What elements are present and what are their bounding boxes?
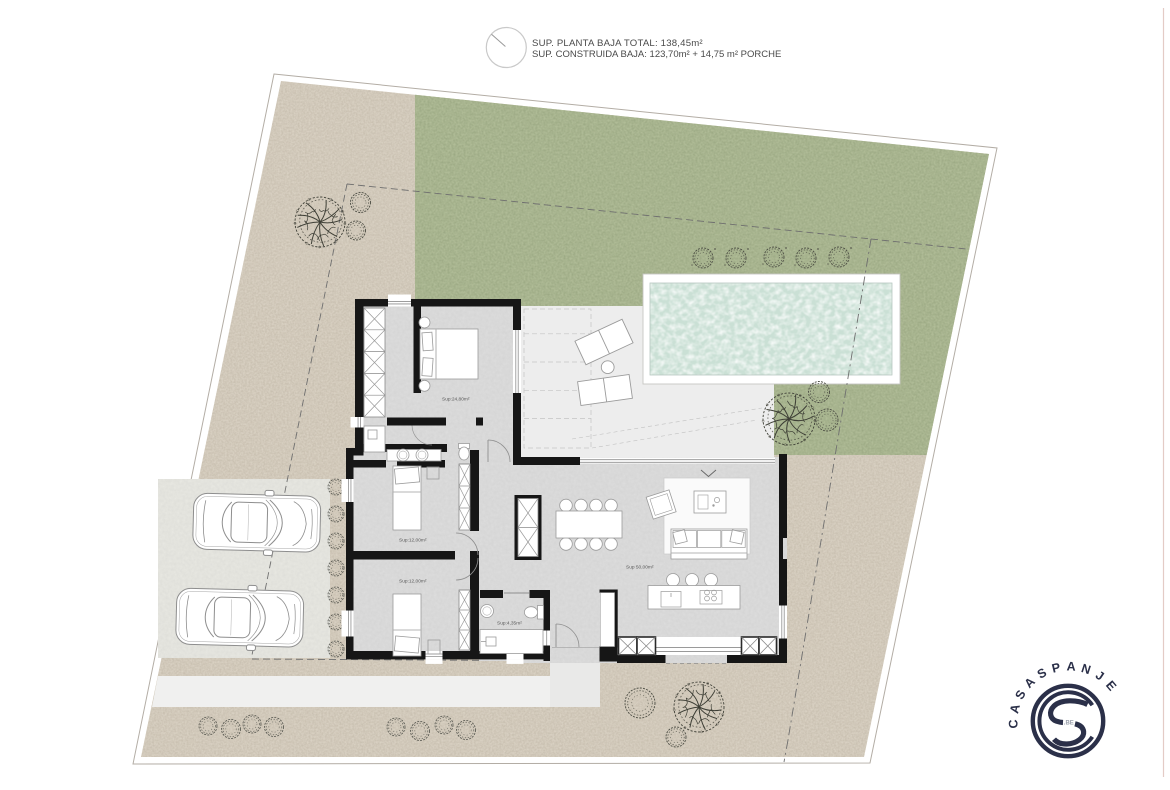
svg-text:SUP. CONSTRUIDA BAJA: 123,70m²: SUP. CONSTRUIDA BAJA: 123,70m² + 14,75 m… [532, 49, 781, 60]
svg-text:Sup:24,80m²: Sup:24,80m² [442, 397, 470, 403]
svg-text:SUP. PLANTA BAJA TOTAL: 138,45: SUP. PLANTA BAJA TOTAL: 138,45m² [532, 38, 703, 49]
svg-text:Sup:12,00m²: Sup:12,00m² [399, 579, 427, 585]
svg-text:Sup 50,00m²: Sup 50,00m² [626, 565, 654, 571]
svg-text:Sup:12,00m²: Sup:12,00m² [399, 538, 427, 544]
svg-text:Sup:4,35m²: Sup:4,35m² [497, 621, 522, 627]
svg-text:A: A [1066, 659, 1076, 673]
svg-text:C: C [1006, 719, 1020, 729]
svg-text:.BE: .BE [1064, 720, 1074, 726]
